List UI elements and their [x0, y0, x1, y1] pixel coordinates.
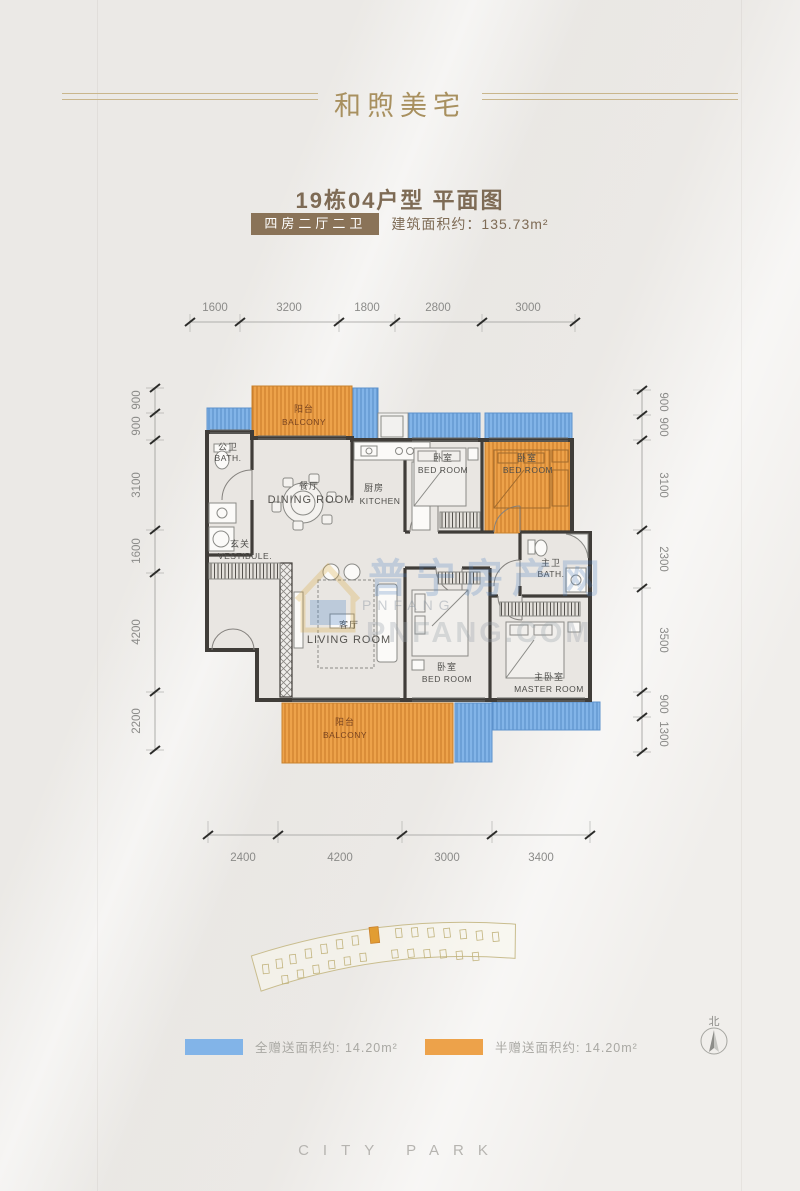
room-label: 阳台: [294, 403, 314, 414]
watermark-small-text: PNFANG: [362, 597, 456, 613]
room-label: BED ROOM: [422, 674, 472, 684]
room-label: BATH.: [215, 453, 242, 463]
legend-label: 半赠送面积约: 14.20m²: [495, 1037, 638, 1056]
legend-swatch-orange: [425, 1039, 483, 1055]
room-label: BALCONY: [282, 417, 326, 427]
room-label: BED ROOM: [503, 465, 553, 475]
dim-right-3: 3100: [657, 472, 669, 498]
dim-bottom-4: 3400: [528, 852, 554, 864]
room-label: 餐厅: [299, 480, 319, 491]
room-label: BED ROOM: [418, 465, 468, 475]
room-label: 公卫: [218, 442, 238, 452]
dim-left-5: 4200: [131, 619, 143, 645]
dim-bottom-2: 4200: [327, 852, 353, 864]
dim-top-4: 2800: [425, 302, 451, 314]
legend-full-gift: 全赠送面积约: 14.20m²: [185, 1037, 398, 1056]
room-label: BALCONY: [323, 730, 367, 740]
room-label: 厨房: [364, 482, 384, 493]
dim-bottom-3: 3000: [434, 852, 460, 864]
dim-right-5: 3500: [657, 627, 669, 653]
dimension-chain-left: 900 900 3100 1600 4200 2200: [131, 384, 164, 754]
room-label: VESTIBULE.: [218, 551, 272, 561]
legend-swatch-blue: [185, 1039, 243, 1055]
watermark-cn-text: 普宁房产网: [368, 557, 608, 601]
floor-plan-canvas: 1600 3200 1800 2800 3000 2400 4200 3000 …: [0, 0, 800, 1191]
dim-top-2: 3200: [276, 302, 302, 314]
room-label: KITCHEN: [360, 496, 401, 506]
room-label: 卧室: [517, 452, 537, 463]
dim-top-3: 1800: [354, 302, 380, 314]
compass-needle: [714, 1030, 719, 1052]
dimension-chain-bottom: 2400 4200 3000 3400: [203, 821, 595, 864]
dimension-chain-right: 900 900 3100 2300 3500 900 1300: [633, 386, 669, 756]
room-label: MASTER ROOM: [514, 684, 584, 694]
dim-right-6: 900: [657, 694, 669, 713]
legend-label: 全赠送面积约: 14.20m²: [255, 1037, 398, 1056]
dim-top-1: 1600: [202, 302, 228, 314]
dim-left-6: 2200: [131, 708, 143, 734]
north-label: 北: [709, 1015, 720, 1028]
site-plan-sketch: [250, 912, 520, 992]
compass-needle: [709, 1030, 714, 1052]
dimension-chain-top: 1600 3200 1800 2800 3000: [185, 302, 580, 332]
dim-right-1: 900: [657, 392, 669, 411]
watermark-site-text: PNFANG.COM: [366, 617, 593, 649]
dim-left-1: 900: [131, 390, 143, 409]
highlighted-building-marker: [369, 927, 380, 944]
dim-right-7: 1300: [657, 721, 669, 747]
north-compass: 北: [701, 1015, 727, 1054]
dim-right-2: 900: [657, 417, 669, 436]
room-label: 玄关: [230, 538, 250, 549]
room-label: 阳台: [335, 716, 355, 727]
dim-right-4: 2300: [657, 546, 669, 572]
dim-top-5: 3000: [515, 302, 541, 314]
dim-left-4: 1600: [131, 538, 143, 564]
dim-left-3: 3100: [131, 472, 143, 498]
room-label: 卧室: [437, 661, 457, 672]
dim-bottom-1: 2400: [230, 852, 256, 864]
room-label: 主卧室: [534, 671, 564, 682]
legend-half-gift: 半赠送面积约: 14.20m²: [425, 1037, 638, 1056]
room-label: 卧室: [433, 452, 453, 463]
footer-brand: CITY PARK: [0, 1142, 800, 1159]
dim-left-2: 900: [131, 416, 143, 435]
room-label: DINING ROOM: [268, 494, 355, 506]
